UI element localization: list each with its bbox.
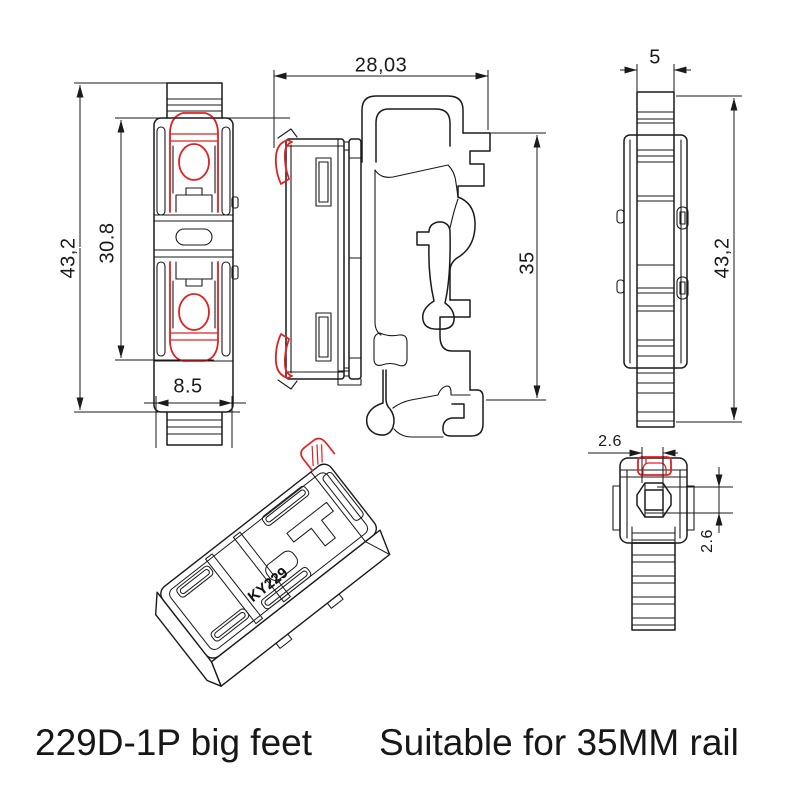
release-clip-side-bottom-highlight xyxy=(276,334,292,378)
dim-edge-overall-height: 43,2 xyxy=(712,238,735,279)
dim-front-width: 8.5 xyxy=(170,376,205,399)
release-clip-side-top-highlight xyxy=(276,140,292,184)
caption-rail-spec: Suitable for 35MM rail xyxy=(379,722,739,764)
dim-top-clip-width: 2.6 xyxy=(598,433,622,451)
dim-side-rail-height: 35 xyxy=(517,251,540,274)
dim-edge-thickness: 5 xyxy=(649,47,661,70)
release-clip-bottom-highlight xyxy=(170,262,218,361)
side-view-dimensions xyxy=(274,70,546,400)
ribbed-foot xyxy=(632,543,675,630)
center-socket xyxy=(637,483,671,517)
dim-front-overall-height: 43,2 xyxy=(58,238,81,279)
technical-drawing-canvas: 43,2 30.8 8.5 28,03 35 5 43,2 2.6 2.6 KY… xyxy=(0,0,800,800)
release-clip-top-highlight xyxy=(170,113,218,212)
release-clip-top-view-highlight xyxy=(638,457,671,475)
technical-drawing xyxy=(0,0,800,800)
side-view-drawing xyxy=(274,70,546,437)
oval-slot xyxy=(176,229,212,245)
dim-side-overall-width: 28,03 xyxy=(355,55,408,78)
perspective-view-drawing xyxy=(131,435,408,696)
dim-front-body-height: 30.8 xyxy=(97,223,120,264)
center-hole xyxy=(645,490,663,510)
dim-top-clip-depth: 2.6 xyxy=(699,529,717,553)
caption-model: 229D-1P big feet xyxy=(35,722,312,764)
din-rail-profile xyxy=(362,96,490,437)
